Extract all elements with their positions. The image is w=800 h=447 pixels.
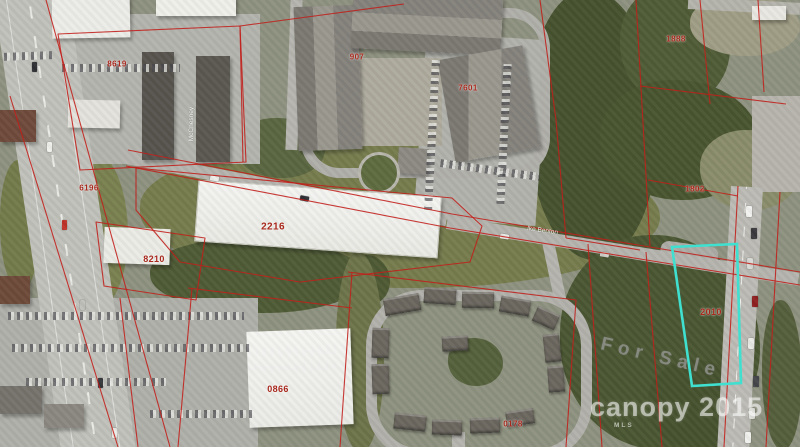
parcel-label-0866[interactable]: 0866	[267, 384, 289, 394]
parcel-label-8210[interactable]: 8210	[143, 254, 165, 264]
parcel-label-6196[interactable]: 6196	[79, 184, 98, 193]
map-labels-layer: 8619619690776012216821008660178188818022…	[0, 0, 800, 447]
watermark-brand-year: 2015	[699, 392, 763, 422]
parcel-label-7601[interactable]: 7601	[458, 84, 477, 93]
parcel-label-2010[interactable]: 2010	[700, 307, 722, 317]
watermark-brand-name: canopy	[590, 392, 691, 422]
aerial-map-view[interactable]: 8619619690776012216821008660178188818022…	[0, 0, 800, 447]
watermark-mls: MLS	[614, 422, 634, 429]
road-label: McChesney	[189, 107, 196, 141]
watermark-brand: canopy 2015	[590, 392, 800, 423]
parcel-label-1802[interactable]: 1802	[685, 185, 704, 194]
parcel-label-1888[interactable]: 1888	[666, 35, 685, 44]
road-label: Ike Benton	[527, 226, 559, 237]
parcel-label-8619[interactable]: 8619	[107, 60, 126, 69]
parcel-label-907[interactable]: 907	[350, 53, 365, 62]
parcel-label-2216[interactable]: 2216	[261, 222, 285, 233]
parcel-label-0178[interactable]: 0178	[503, 420, 522, 429]
